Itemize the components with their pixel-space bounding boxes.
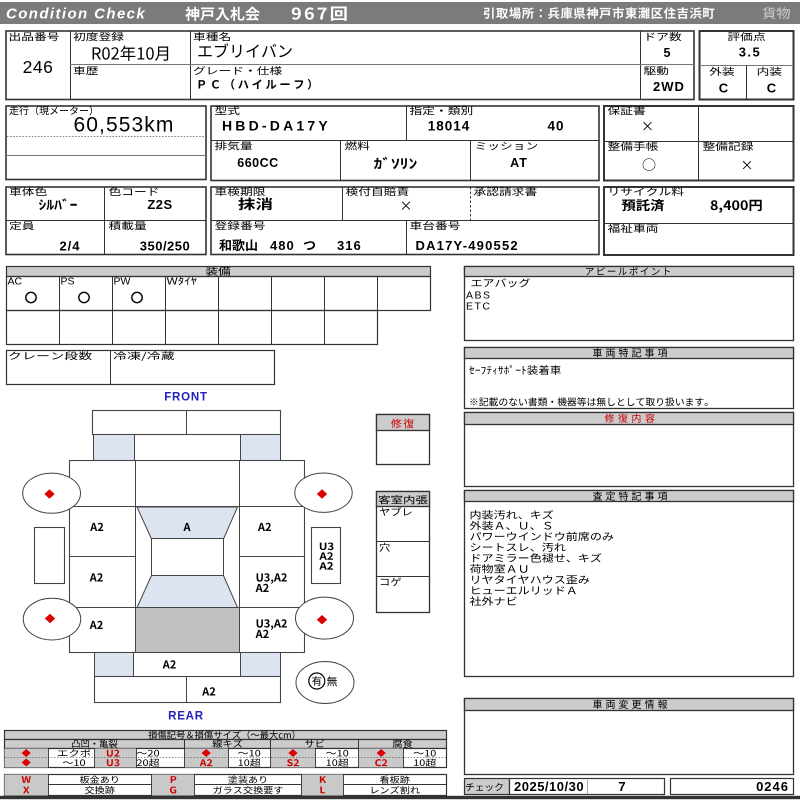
svg-text:ETC: ETC	[466, 301, 492, 313]
svg-text:PW: PW	[114, 276, 131, 288]
svg-text:Condition Check: Condition Check	[6, 6, 146, 23]
svg-text:FRONT: FRONT	[164, 392, 208, 404]
svg-text:660CC: 660CC	[237, 156, 278, 170]
svg-text:PS: PS	[61, 276, 75, 288]
svg-text:246: 246	[23, 57, 54, 77]
svg-text:ABS: ABS	[466, 289, 492, 301]
svg-text:HBD-DA17Y: HBD-DA17Y	[222, 118, 331, 134]
svg-text:2025/10/30: 2025/10/30	[514, 779, 584, 794]
svg-text:316: 316	[337, 238, 362, 253]
svg-text:AT: AT	[510, 156, 528, 170]
svg-text:0246: 0246	[756, 779, 789, 794]
svg-text:480: 480	[270, 238, 295, 253]
svg-text:Z2S: Z2S	[147, 197, 172, 212]
svg-text:7: 7	[618, 779, 625, 794]
svg-text:40: 40	[547, 119, 564, 134]
svg-text:C: C	[719, 81, 729, 96]
svg-text:350/250: 350/250	[140, 239, 191, 254]
svg-text:3.5: 3.5	[739, 45, 762, 60]
svg-text:60,553km: 60,553km	[73, 114, 174, 137]
svg-text:REAR: REAR	[168, 711, 204, 723]
svg-text:2WD: 2WD	[653, 79, 685, 94]
svg-text:C: C	[767, 81, 777, 96]
svg-text:18014: 18014	[428, 119, 471, 134]
svg-text:DA17Y-490552: DA17Y-490552	[416, 238, 519, 253]
svg-text:2/4: 2/4	[59, 239, 80, 254]
svg-text:AC: AC	[8, 276, 23, 288]
svg-text:5: 5	[664, 46, 671, 60]
